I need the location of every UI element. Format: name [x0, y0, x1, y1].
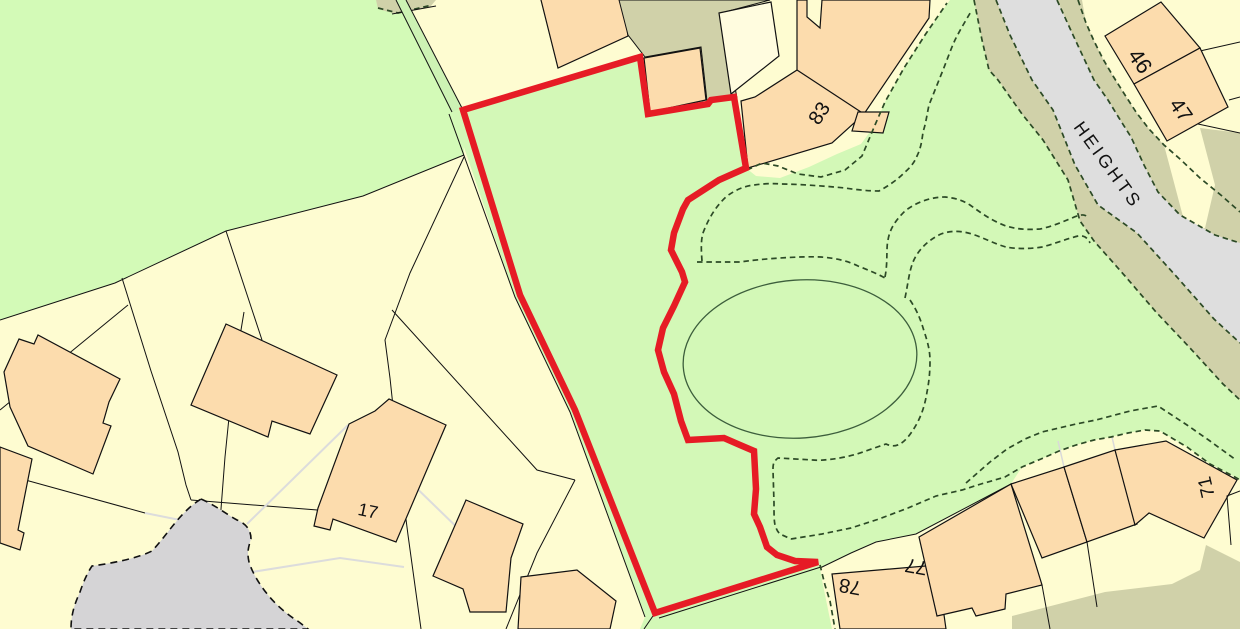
svg-text:78: 78: [837, 573, 863, 599]
svg-text:17: 17: [356, 499, 380, 523]
svg-text:77: 77: [903, 553, 929, 579]
